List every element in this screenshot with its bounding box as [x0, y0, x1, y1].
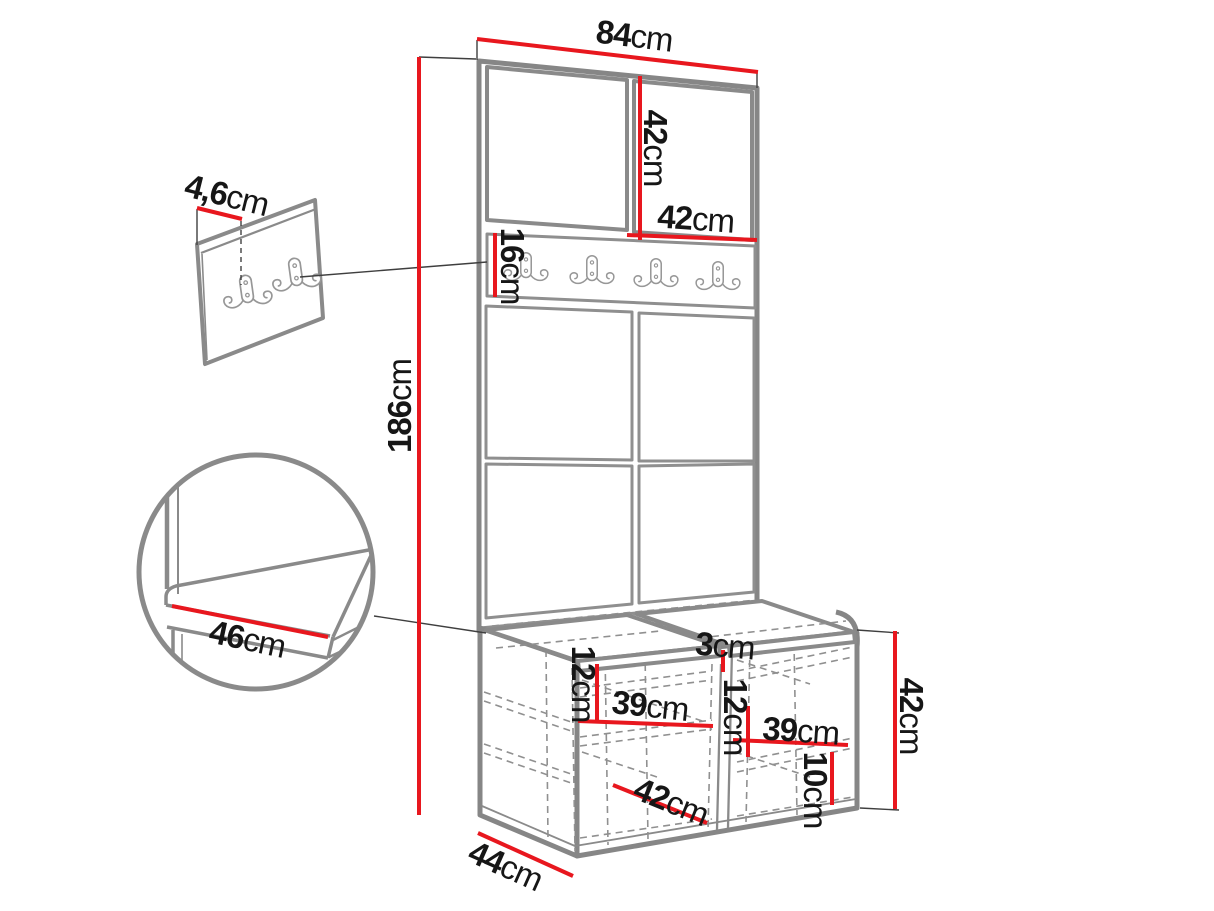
- dim-label-hook-panel-height: 16cm: [494, 228, 531, 305]
- dim-label-total-width: 84cm: [594, 13, 675, 59]
- dim-unit: cm: [637, 144, 674, 186]
- dim-unit: cm: [796, 712, 840, 752]
- dim-value: 12: [565, 646, 602, 681]
- dim-label-total-height: 186cm: [381, 359, 418, 453]
- dim-label-seat-depth: 46cm: [206, 613, 289, 665]
- dim-label-center-shelf-offset: 12cm: [717, 679, 754, 756]
- dim-unit: cm: [240, 620, 289, 665]
- dim-label-upper-door-width: 42cm: [656, 197, 735, 239]
- upholstered-panel: [486, 464, 632, 618]
- dim-label-cushion-gap: 3cm: [694, 625, 756, 667]
- upper-left-door: [487, 67, 627, 230]
- hallway-furniture-dimension-diagram: 84cm 42cm 42cm 16cm 4,6cm 186cm 46cm 3cm…: [0, 0, 1214, 911]
- extension-line: [857, 630, 899, 633]
- dim-value: 16: [494, 228, 531, 263]
- wardrobe-unit: [479, 61, 757, 631]
- dim-label-right-inner-width: 39cm: [761, 709, 840, 751]
- dim-unit: cm: [893, 712, 930, 754]
- upholstered-panel: [486, 306, 632, 460]
- dim-label-bench-depth: 44cm: [463, 833, 548, 898]
- dim-unit: cm: [629, 17, 675, 59]
- extension-line: [419, 57, 476, 59]
- dim-value: 42: [893, 678, 930, 713]
- dim-label-bottom-shelf-offset: 10cm: [797, 752, 834, 829]
- dim-value: 12: [717, 679, 754, 714]
- dim-value: 42: [637, 110, 674, 145]
- dim-unit: cm: [691, 200, 735, 240]
- dim-value: 39: [761, 709, 799, 748]
- upholstered-panel: [639, 464, 754, 603]
- dim-label-bench-height: 42cm: [893, 678, 930, 755]
- upholstered-panel: [639, 313, 754, 461]
- dim-unit: cm: [645, 687, 691, 728]
- dim-value: 39: [610, 683, 649, 723]
- bench-left-side: [480, 628, 577, 856]
- wall-panel-detail: [197, 200, 323, 364]
- dim-value: 10: [797, 752, 834, 787]
- dim-unit: cm: [381, 359, 418, 401]
- dim-label-upper-door-height: 42cm: [637, 110, 674, 187]
- dim-value: 42: [656, 197, 694, 236]
- diagram-canvas: 84cm 42cm 42cm 16cm 4,6cm 186cm 46cm 3cm…: [0, 0, 1214, 911]
- dim-unit: cm: [717, 713, 754, 755]
- dim-value: 186: [381, 400, 418, 453]
- dim-label-left-shelf-offset: 12cm: [565, 646, 602, 723]
- callout-line: [374, 616, 486, 633]
- callout-line: [300, 262, 487, 277]
- dim-unit: cm: [711, 626, 756, 667]
- dim-unit: cm: [797, 786, 834, 828]
- detail-cushion-end-edge: [333, 549, 374, 637]
- dim-unit: cm: [494, 262, 531, 304]
- dim-unit: cm: [565, 680, 602, 722]
- detail-cushion-top-edge: [166, 549, 374, 605]
